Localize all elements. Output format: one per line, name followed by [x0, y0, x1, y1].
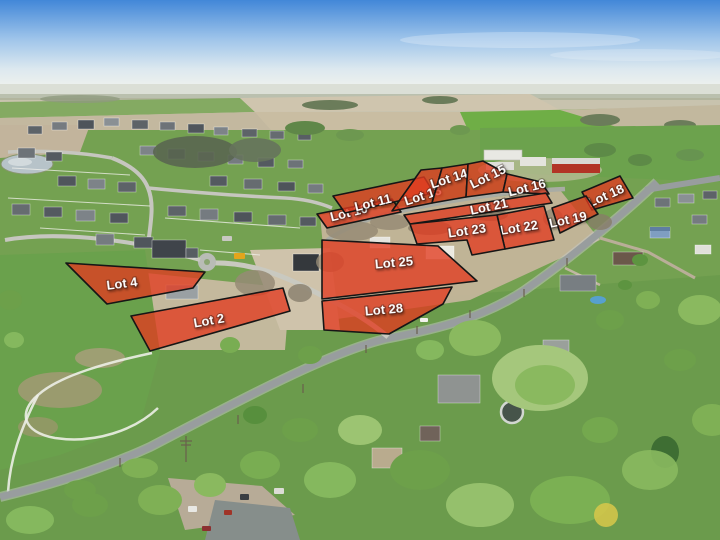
model-home: [152, 240, 186, 258]
construction-truck: [234, 253, 245, 259]
lot-overlay-15: Lot 15: [466, 161, 508, 197]
car-on-road: [420, 318, 428, 322]
sky: [0, 0, 720, 86]
house-under-construction: [293, 254, 319, 271]
aerial-lot-map-photo: Lot 2 Lot 4 Lot 10 Lot 11 Lot 13 Lot 14 …: [0, 0, 720, 540]
grey-ranch-house: [560, 275, 596, 291]
backyard-pool: [590, 296, 606, 304]
